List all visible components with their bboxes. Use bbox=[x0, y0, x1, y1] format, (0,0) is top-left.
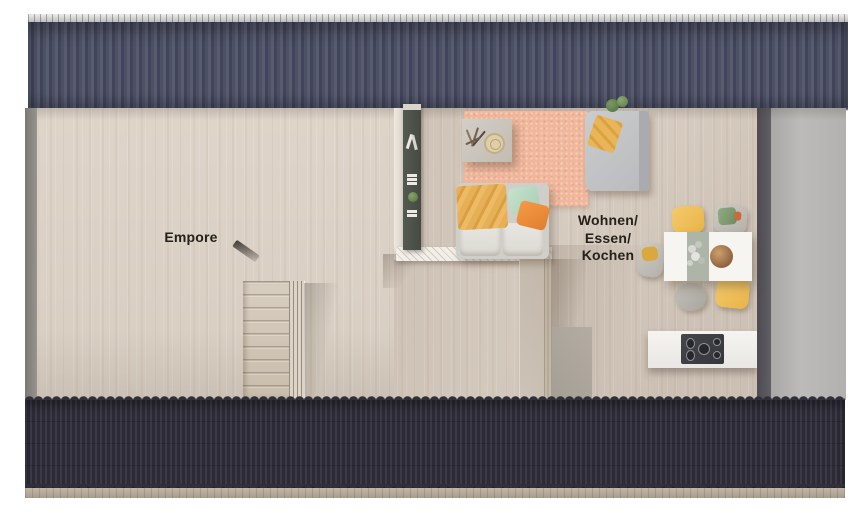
table-flowers bbox=[686, 241, 710, 271]
bookshelf-top bbox=[403, 104, 421, 110]
dining-chair-gray bbox=[713, 204, 748, 235]
book-icon bbox=[407, 174, 417, 177]
floor-plan: Empore Wohnen/ Essen/ Kochen bbox=[0, 0, 866, 517]
eave-strip bbox=[25, 488, 845, 498]
decor-tray bbox=[484, 133, 505, 154]
staircase-treads bbox=[243, 281, 291, 398]
roof-bottom-corrugated bbox=[25, 400, 845, 488]
staircase-railing bbox=[289, 281, 304, 398]
room-label-empore: Empore bbox=[151, 229, 231, 245]
left-wall bbox=[25, 108, 37, 400]
book-icon bbox=[411, 135, 418, 150]
roof-shadow bbox=[37, 108, 846, 120]
decor-bowl bbox=[710, 245, 733, 268]
staircase-shadow bbox=[304, 283, 340, 398]
book-icon bbox=[407, 214, 417, 217]
dining-chair-yellow bbox=[671, 205, 705, 234]
book-icon bbox=[407, 178, 417, 181]
book-icon bbox=[407, 182, 417, 185]
burner-icon bbox=[686, 350, 695, 361]
daybed bbox=[585, 111, 649, 191]
daybed-backrest bbox=[639, 111, 649, 191]
right-gable-band bbox=[771, 108, 846, 400]
empore-floor-shading bbox=[37, 330, 394, 400]
right-wall bbox=[757, 108, 771, 400]
plant-icon bbox=[617, 96, 628, 107]
room-label-line: Kochen bbox=[566, 247, 650, 265]
plant-icon bbox=[408, 192, 418, 202]
cooktop bbox=[681, 334, 724, 364]
burner-icon bbox=[698, 343, 710, 355]
dining-chair-yellow bbox=[715, 277, 751, 309]
book-icon bbox=[407, 210, 417, 213]
sofa bbox=[456, 183, 549, 259]
jacket-orange-detail bbox=[734, 211, 742, 221]
bookshelf bbox=[403, 104, 421, 250]
burner-icon bbox=[713, 338, 721, 346]
kitchen-island bbox=[648, 331, 757, 368]
throw-blanket bbox=[456, 184, 508, 231]
burner-icon bbox=[713, 351, 721, 359]
roof-top-corrugated bbox=[28, 22, 848, 108]
flower-icon bbox=[698, 257, 705, 264]
daybed-blanket bbox=[587, 114, 624, 153]
room-label-line: Essen/ bbox=[566, 230, 650, 248]
room-label-wohnen-essen-kochen: Wohnen/ Essen/ Kochen bbox=[566, 212, 650, 265]
coffee-table bbox=[462, 119, 512, 162]
burner-icon bbox=[686, 338, 695, 349]
flower-icon bbox=[687, 260, 693, 266]
flower-icon bbox=[695, 241, 702, 248]
room-label-line: Wohnen/ bbox=[566, 212, 650, 230]
partition-wall bbox=[394, 108, 403, 260]
dining-table bbox=[664, 232, 752, 281]
